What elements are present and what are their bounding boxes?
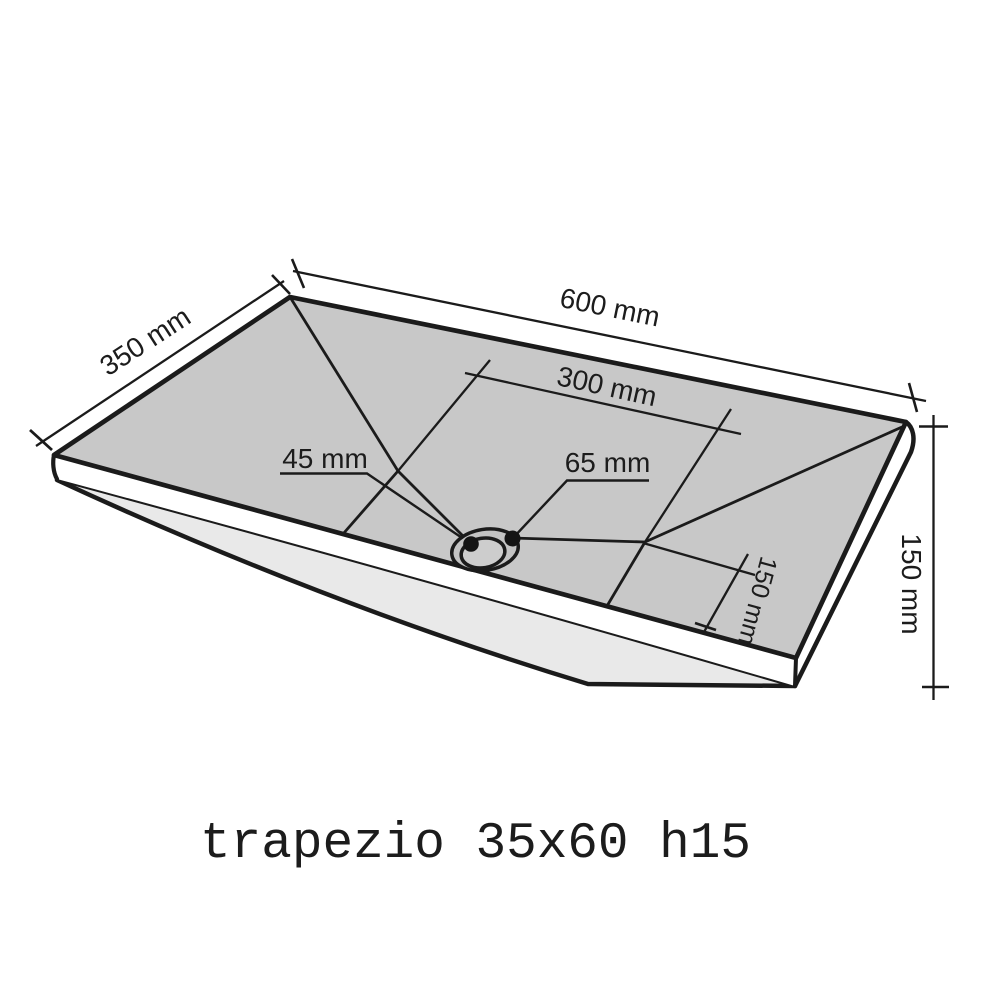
svg-text:600 mm: 600 mm (557, 282, 662, 333)
svg-text:150 mm: 150 mm (896, 533, 927, 634)
svg-text:65 mm: 65 mm (565, 447, 651, 478)
svg-text:trapezio 35x60 h15: trapezio 35x60 h15 (200, 816, 751, 873)
svg-text:45 mm: 45 mm (282, 443, 368, 474)
